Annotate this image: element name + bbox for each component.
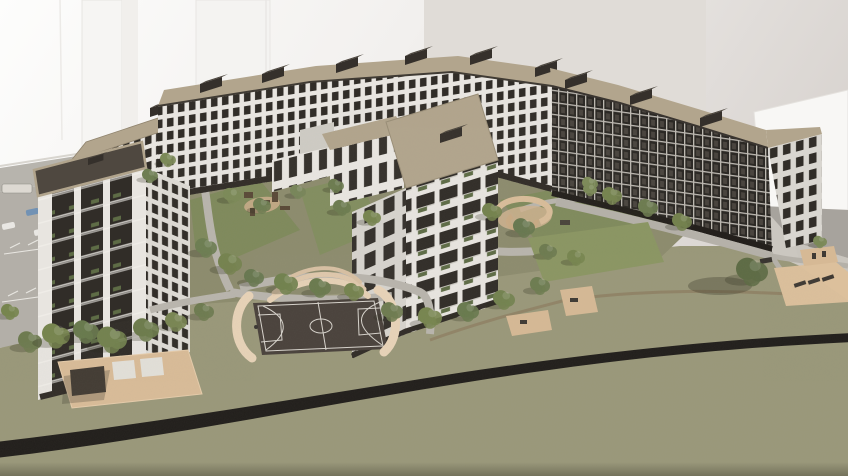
architectural-rendering — [0, 0, 848, 476]
bottom-shade — [0, 462, 848, 476]
bus — [2, 184, 32, 193]
render-canvas — [0, 0, 848, 476]
